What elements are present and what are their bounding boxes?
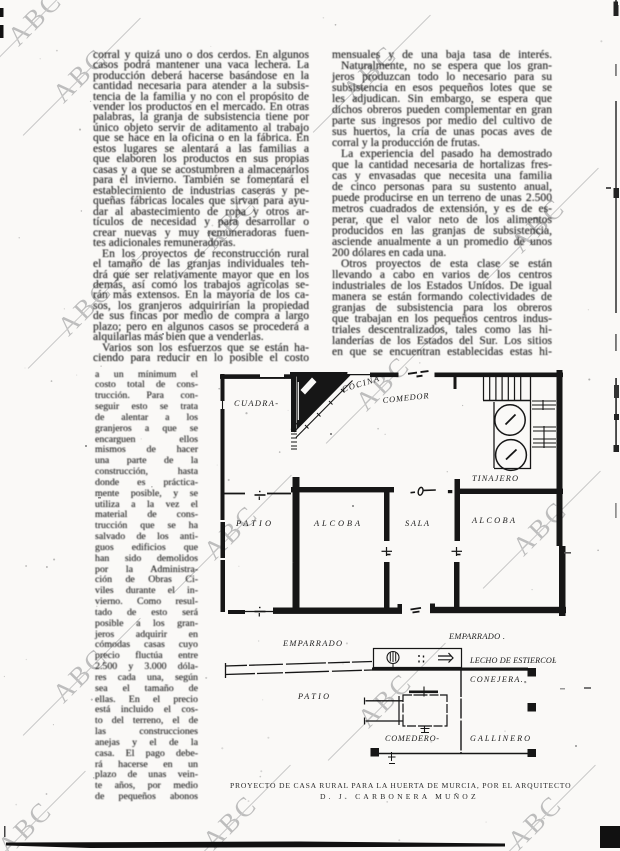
svg-text:CONEJERA.,: CONEJERA., xyxy=(470,675,528,684)
svg-text:PATIO: PATIO xyxy=(235,519,273,528)
svg-text:SALA: SALA xyxy=(405,519,431,528)
svg-text:EMPARRADO: EMPARRADO xyxy=(282,639,344,648)
svg-text:PROYECTO DE CASA RURAL PARA LA: PROYECTO DE CASA RURAL PARA LA HUERTA DE… xyxy=(230,781,571,790)
svg-text:ALCOBA: ALCOBA xyxy=(313,519,362,528)
svg-text:ALCOBA: ALCOBA xyxy=(471,516,517,525)
svg-text:COMEDERO-: COMEDERO- xyxy=(385,734,441,743)
svg-text:GALLINERO: GALLINERO xyxy=(470,734,532,743)
svg-text:COMEDOR: COMEDOR xyxy=(382,391,431,405)
svg-text:D. J. CARBONERA MUÑOZ: D. J. CARBONERA MUÑOZ xyxy=(320,791,476,801)
svg-text:LECHO DE ESTIERCOL: LECHO DE ESTIERCOL xyxy=(469,656,558,665)
svg-text:TINAJERO: TINAJERO xyxy=(472,474,520,483)
svg-text:CUADRA-: CUADRA- xyxy=(234,399,280,408)
svg-text:PATIO: PATIO xyxy=(297,692,331,701)
svg-text:EMPARRADO .: EMPARRADO . xyxy=(448,632,507,641)
